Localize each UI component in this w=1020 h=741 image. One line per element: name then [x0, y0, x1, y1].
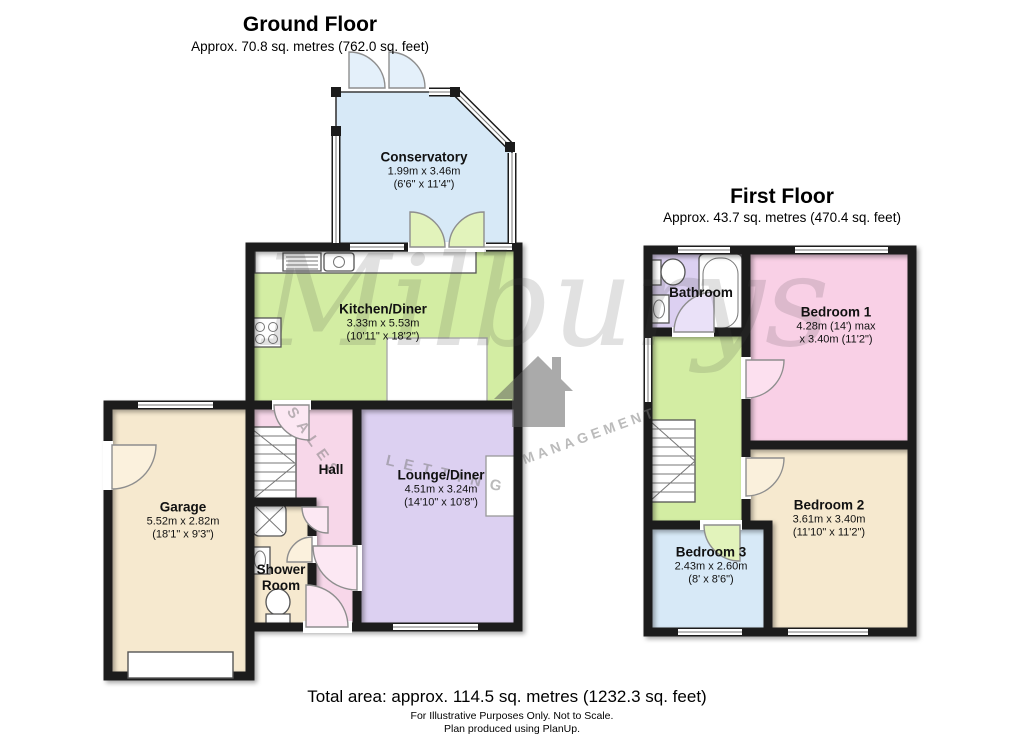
first-floor-plan — [648, 250, 912, 632]
floorplan-drawing — [0, 0, 1020, 741]
stairs-icon-ground — [252, 427, 296, 502]
room-bedroom-1 — [746, 250, 912, 445]
shower-cubicle-icon — [253, 504, 286, 536]
floorplan-canvas: Milburys SALES LETTING MANAGEMENT Ground… — [0, 0, 1020, 741]
ground-floor-plan — [103, 52, 519, 678]
garage-door — [128, 652, 233, 678]
kitchen-counter-icon — [255, 251, 476, 273]
toilet-icon-first — [650, 259, 685, 285]
hob-icon — [251, 318, 281, 347]
total-area-text: Total area: approx. 114.5 sq. metres (12… — [307, 687, 706, 707]
room-lounge-diner — [357, 407, 518, 627]
stairs-icon-first — [650, 420, 695, 502]
toilet-icon-ground — [266, 589, 290, 624]
kitchen-island — [387, 338, 487, 404]
first-floor-subtitle: Approx. 43.7 sq. metres (470.4 sq. feet) — [663, 210, 901, 225]
sink-icon-first — [650, 295, 669, 323]
plan-credit-text: Plan produced using PlanUp. — [444, 723, 580, 735]
ground-floor-subtitle: Approx. 70.8 sq. metres (762.0 sq. feet) — [191, 39, 429, 54]
ground-floor-title: Ground Floor — [243, 13, 377, 37]
disclaimer-text: For Illustrative Purposes Only. Not to S… — [411, 710, 614, 722]
first-floor-title: First Floor — [730, 185, 834, 209]
